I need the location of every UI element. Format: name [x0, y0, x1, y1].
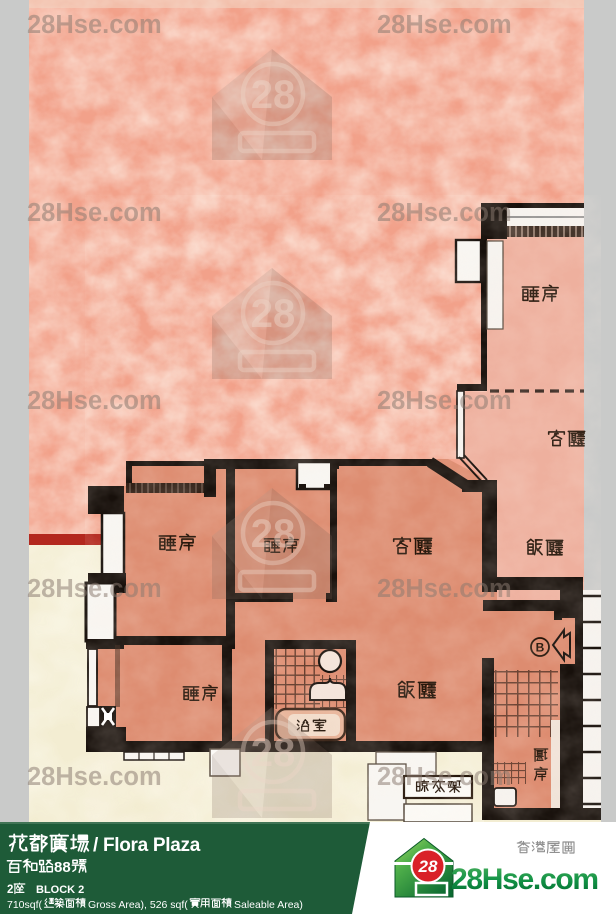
svg-text:28Hse.com: 28Hse.com [27, 199, 162, 227]
svg-text:28: 28 [418, 857, 438, 876]
svg-text:28Hse.com: 28Hse.com [377, 199, 512, 227]
svg-text:28Hse.com: 28Hse.com [27, 11, 162, 39]
svg-text:Gross Area), 526 sqf(: Gross Area), 526 sqf( [88, 899, 188, 911]
svg-text:/ Flora Plaza: / Flora Plaza [93, 835, 201, 856]
svg-text:88: 88 [54, 859, 71, 876]
svg-text:28Hse.com: 28Hse.com [27, 387, 162, 415]
svg-text:BLOCK 2: BLOCK 2 [36, 884, 84, 896]
svg-text:28: 28 [251, 731, 296, 775]
svg-text:28Hse.com: 28Hse.com [27, 575, 162, 603]
svg-text:28Hse.com: 28Hse.com [377, 387, 512, 415]
svg-text:28: 28 [251, 73, 296, 117]
svg-text:28Hse.com: 28Hse.com [377, 11, 512, 39]
svg-text:2: 2 [7, 884, 13, 896]
svg-text:28Hse.com: 28Hse.com [377, 763, 512, 791]
svg-text:28Hse.com: 28Hse.com [27, 763, 162, 791]
svg-text:710sqf(: 710sqf( [7, 899, 43, 911]
svg-text:Saleable Area): Saleable Area) [234, 899, 303, 911]
svg-text:28Hse.com: 28Hse.com [451, 863, 598, 896]
svg-text:28Hse.com: 28Hse.com [377, 575, 512, 603]
svg-text:28: 28 [251, 292, 296, 336]
svg-text:28: 28 [251, 512, 296, 556]
